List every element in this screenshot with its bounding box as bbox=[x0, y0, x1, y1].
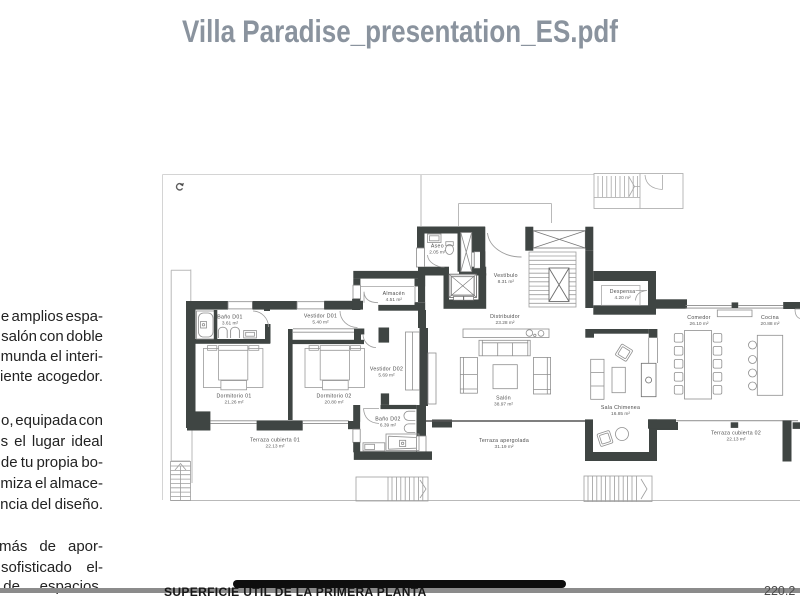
svg-text:Baño D02: Baño D02 bbox=[375, 417, 400, 423]
svg-text:16.85 m²: 16.85 m² bbox=[611, 411, 630, 417]
svg-text:Distribuidor: Distribuidor bbox=[490, 314, 520, 320]
svg-text:6.39 m²: 6.39 m² bbox=[380, 423, 397, 429]
svg-text:23.28 m²: 23.28 m² bbox=[496, 320, 515, 326]
svg-text:Vestíbulo: Vestíbulo bbox=[494, 273, 518, 279]
svg-text:22.13 m²: 22.13 m² bbox=[727, 437, 746, 443]
svg-text:Dormitorio 01: Dormitorio 01 bbox=[216, 394, 251, 400]
svg-text:20.88 m²: 20.88 m² bbox=[761, 321, 780, 327]
svg-text:31.19 m²: 31.19 m² bbox=[495, 444, 514, 450]
svg-text:Sala Chimenea: Sala Chimenea bbox=[601, 405, 640, 411]
svg-text:Cocina: Cocina bbox=[761, 315, 779, 321]
svg-text:Baño D01: Baño D01 bbox=[217, 315, 242, 321]
svg-text:Despensa: Despensa bbox=[610, 289, 636, 295]
svg-text:Vestidor D02: Vestidor D02 bbox=[370, 367, 403, 373]
svg-text:5.40 m²: 5.40 m² bbox=[312, 320, 329, 326]
svg-text:22.13 m²: 22.13 m² bbox=[266, 444, 285, 450]
svg-text:2.05 m²: 2.05 m² bbox=[429, 250, 446, 256]
svg-text:20.80 m²: 20.80 m² bbox=[325, 400, 344, 406]
svg-text:Comedor: Comedor bbox=[687, 315, 710, 321]
svg-text:4.51 m²: 4.51 m² bbox=[386, 297, 403, 303]
svg-text:38.97 m²: 38.97 m² bbox=[494, 402, 513, 408]
svg-text:Terraza cubierta 02: Terraza cubierta 02 bbox=[711, 431, 761, 437]
svg-text:Terraza cubierta 01: Terraza cubierta 01 bbox=[250, 438, 300, 444]
svg-text:Vestidor D01: Vestidor D01 bbox=[304, 314, 337, 320]
svg-text:Terraza apergolada: Terraza apergolada bbox=[479, 438, 529, 444]
svg-text:Dormitorio 02: Dormitorio 02 bbox=[316, 394, 351, 400]
svg-text:Aseo: Aseo bbox=[431, 244, 444, 250]
svg-text:26.10 m²: 26.10 m² bbox=[690, 321, 709, 327]
svg-text:3.61 m²: 3.61 m² bbox=[222, 321, 239, 327]
svg-text:Salón: Salón bbox=[496, 396, 511, 402]
svg-text:5.69 m²: 5.69 m² bbox=[378, 373, 395, 379]
svg-text:8.31 m²: 8.31 m² bbox=[498, 279, 515, 285]
svg-text:Almacén: Almacén bbox=[383, 291, 405, 297]
svg-text:21.26 m²: 21.26 m² bbox=[225, 400, 244, 406]
svg-text:4.20 m²: 4.20 m² bbox=[614, 295, 631, 301]
